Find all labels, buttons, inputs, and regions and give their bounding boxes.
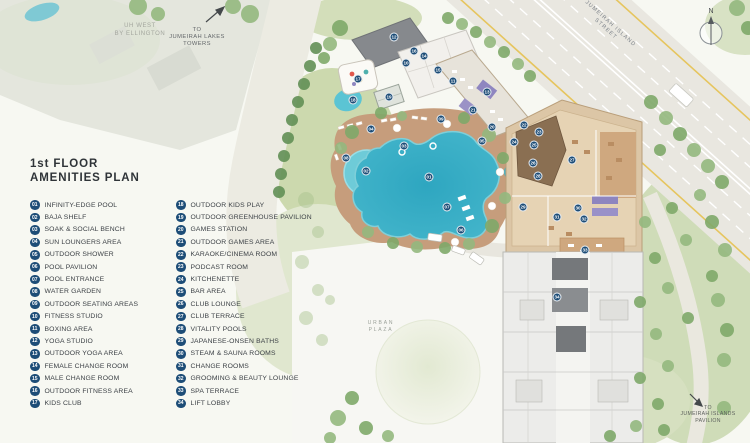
tree-icon (458, 112, 470, 124)
tree-icon (705, 215, 719, 229)
tree-icon (345, 125, 359, 139)
tree-icon (498, 46, 510, 58)
map-marker: 04 (367, 125, 376, 134)
map-marker: 22 (520, 121, 529, 130)
tree-icon (292, 96, 304, 108)
amenities-plan-page: N UH WEST BY ELLINGTON TO JUMEIRAH LAKES… (0, 0, 750, 443)
tree-icon (484, 36, 496, 48)
tree-icon (717, 353, 731, 367)
tree-icon (442, 12, 454, 24)
map-marker: 20 (488, 123, 497, 132)
tree-icon (335, 142, 347, 154)
map-marker: 06 (457, 226, 466, 235)
tree-icon (299, 311, 313, 325)
map-marker: 08 (342, 154, 351, 163)
tree-icon (720, 323, 734, 337)
map-marker: 31 (553, 213, 562, 222)
tree-icon (397, 111, 407, 121)
tree-icon (654, 144, 666, 156)
tree-icon (323, 37, 337, 51)
map-marker: 24 (510, 138, 519, 147)
site-plan-map: N (0, 0, 750, 443)
map-marker: 16 (410, 47, 419, 56)
tree-icon (310, 42, 322, 54)
tree-icon (680, 234, 692, 246)
tree-icon (673, 127, 687, 141)
map-marker: 25 (530, 141, 539, 150)
tree-icon (304, 60, 316, 72)
tree-icon (332, 20, 348, 36)
tree-icon (273, 186, 285, 198)
map-marker: 01 (425, 173, 434, 182)
tree-icon (658, 424, 670, 436)
map-marker: 17 (354, 75, 363, 84)
tree-icon (463, 238, 475, 250)
tree-icon (375, 107, 387, 119)
map-marker: 23 (535, 128, 544, 137)
map-marker: 02 (362, 167, 371, 176)
tree-icon (687, 143, 701, 157)
tree-icon (662, 360, 674, 372)
tree-icon (499, 192, 511, 204)
tree-icon (682, 312, 694, 324)
map-marker: 32 (580, 215, 589, 224)
tree-icon (497, 152, 509, 164)
tree-icon (485, 219, 499, 233)
tree-icon (604, 430, 616, 442)
tree-icon (694, 189, 706, 201)
tree-icon (298, 78, 310, 90)
map-marker: 19 (385, 93, 394, 102)
map-marker: 33 (581, 246, 590, 255)
tree-icon (330, 410, 346, 426)
map-marker: 03 (400, 142, 409, 151)
map-marker: 21 (469, 106, 478, 115)
tree-icon (649, 252, 661, 264)
tree-icon (151, 7, 165, 21)
map-marker: 29 (519, 203, 528, 212)
tree-icon (634, 296, 646, 308)
tree-icon (711, 293, 725, 307)
map-marker: 26 (529, 159, 538, 168)
tree-icon (630, 420, 642, 432)
map-marker: 18 (349, 96, 358, 105)
tree-icon (278, 150, 290, 162)
map-marker: 15 (434, 66, 443, 75)
tree-icon (387, 237, 399, 249)
tree-icon (718, 243, 732, 257)
tree-icon (345, 391, 359, 405)
club-terrace-area (600, 132, 636, 198)
map-marker: 09 (437, 115, 446, 124)
tree-icon (652, 398, 664, 410)
tree-icon (318, 52, 330, 64)
map-marker: 14 (420, 52, 429, 61)
tree-icon (362, 226, 374, 238)
tree-icon (639, 216, 651, 228)
map-marker: 05 (478, 137, 487, 146)
tree-icon (524, 70, 536, 82)
tree-icon (701, 159, 715, 173)
tree-icon (312, 226, 324, 238)
map-marker: 11 (449, 77, 458, 86)
map-marker: 12 (390, 33, 399, 42)
tree-icon (241, 5, 259, 23)
tree-icon (456, 18, 468, 30)
tree-icon (634, 372, 646, 384)
tree-icon (729, 0, 745, 16)
tree-icon (659, 111, 673, 125)
map-marker: 10 (402, 59, 411, 68)
tree-icon (439, 242, 451, 254)
tree-icon (715, 175, 729, 189)
tree-icon (717, 401, 731, 415)
tree-icon (411, 241, 423, 253)
tower-floorplan (503, 252, 643, 443)
tree-icon (706, 270, 718, 282)
tree-icon (275, 168, 287, 180)
tree-icon (312, 284, 324, 296)
map-marker: 34 (553, 293, 562, 302)
tree-icon (359, 421, 373, 435)
service-core (552, 258, 588, 280)
tree-icon (295, 255, 309, 269)
tree-icon (316, 334, 328, 346)
tree-icon (512, 58, 524, 70)
sauna-room (592, 208, 618, 216)
tree-icon (382, 430, 394, 442)
steam-room (592, 196, 618, 204)
tree-icon (650, 328, 662, 340)
tree-icon (666, 202, 678, 214)
map-marker: 30 (574, 204, 583, 213)
tree-icon (470, 26, 482, 38)
tree-icon (662, 282, 674, 294)
map-marker: 13 (483, 88, 492, 97)
map-marker: 07 (443, 203, 452, 212)
tree-icon (282, 132, 294, 144)
tree-icon (298, 192, 314, 208)
tree-icon (286, 114, 298, 126)
map-marker: 27 (568, 156, 577, 165)
map-marker: 28 (534, 172, 543, 181)
compass-north-label: N (708, 8, 713, 15)
tree-icon (325, 295, 335, 305)
tree-icon (644, 95, 658, 109)
